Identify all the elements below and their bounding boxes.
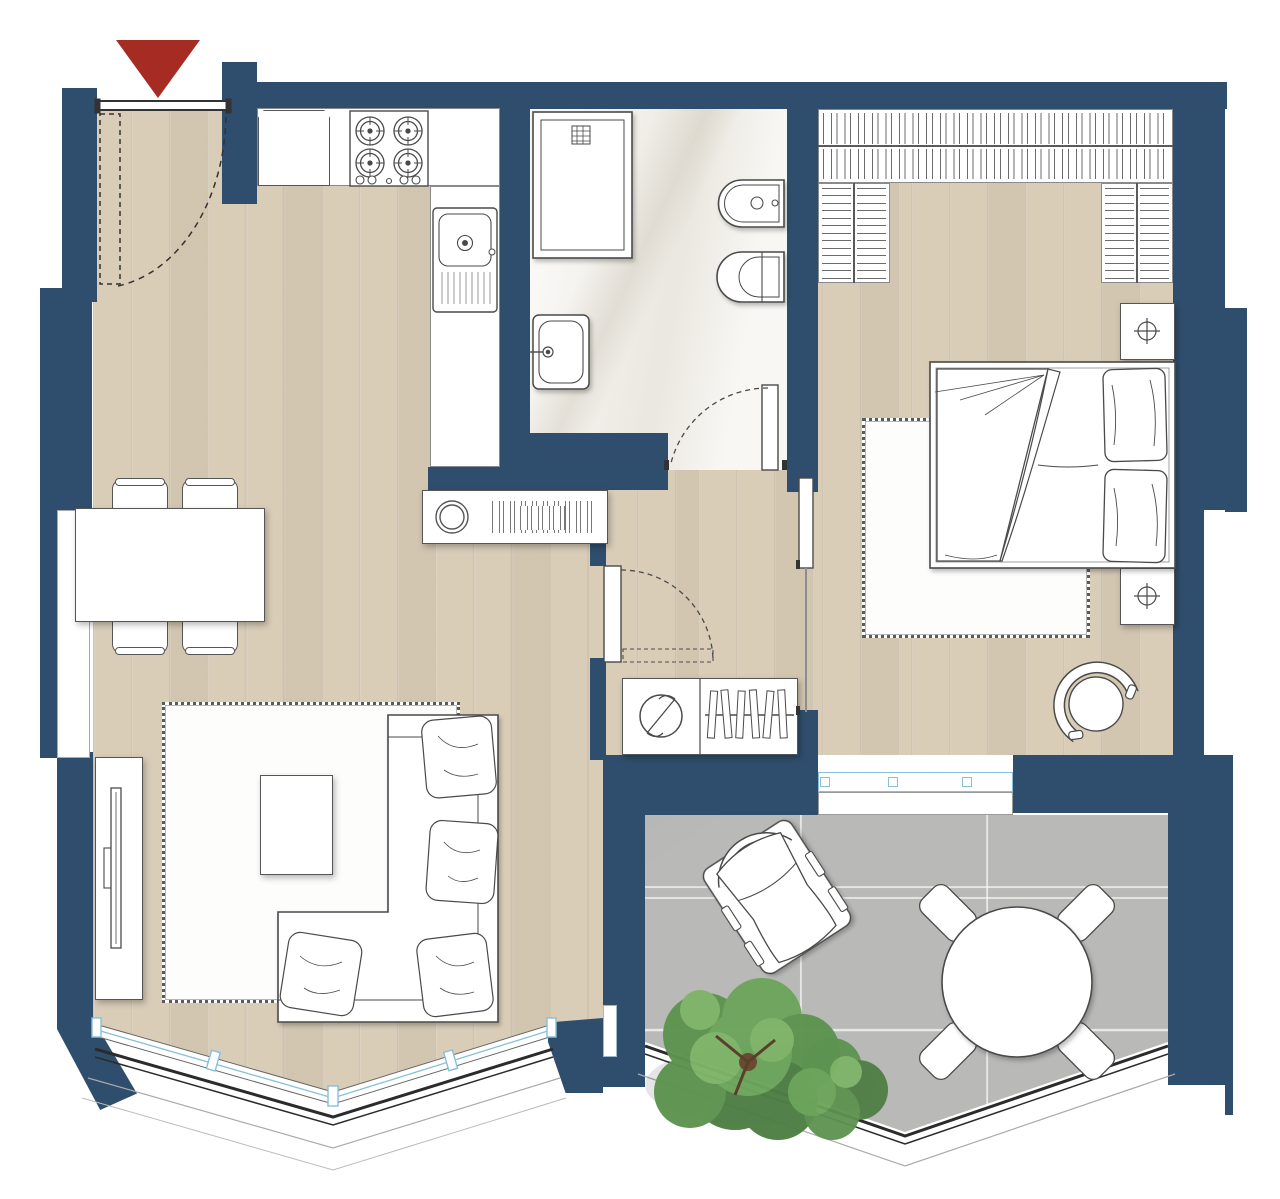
wall-right-bump	[1225, 308, 1247, 512]
wall-left-mid	[40, 288, 92, 510]
wall-kitchen-bath-divider	[500, 109, 530, 467]
refrigerator	[258, 110, 330, 186]
wall-left-low	[57, 752, 93, 1028]
wall-bedroom-bottom	[1013, 755, 1227, 813]
wall-left-top	[62, 88, 97, 302]
chair-back	[115, 478, 165, 486]
window-mullion	[888, 777, 898, 787]
wardrobe-rail	[853, 183, 855, 283]
wall-right-skin	[1225, 755, 1233, 1115]
floor-plan	[0, 0, 1280, 1199]
window-mullion	[820, 777, 830, 787]
tv-unit	[95, 757, 143, 1000]
bedroom-rug	[862, 418, 1090, 638]
nightstand	[1120, 568, 1175, 625]
wall-living-terrace-wedge	[548, 1018, 603, 1093]
dining-table	[75, 508, 265, 622]
wall-left-window-outer	[40, 510, 57, 758]
terrace-side-window	[603, 1005, 617, 1057]
books-row	[520, 506, 565, 530]
bathroom-floor	[530, 108, 787, 470]
wall-entrance-stub	[222, 62, 257, 204]
wall-right-upper	[1173, 109, 1225, 510]
entrance-marker	[116, 40, 200, 98]
wardrobe-rail	[818, 145, 1173, 147]
bedroom-terrace-window	[818, 772, 1013, 792]
chair-back	[115, 647, 165, 655]
wall-bath-right	[787, 109, 818, 492]
bedroom-terrace-window-sill	[818, 792, 1013, 815]
hall-closet	[622, 678, 798, 755]
wardrobe-hangers-column	[1140, 188, 1169, 279]
coffee-table	[260, 775, 333, 875]
wall-bath-bottom	[530, 433, 668, 467]
wall-hall-bottom	[603, 755, 818, 815]
chair-back	[185, 478, 235, 486]
entrance-door-frame	[97, 100, 228, 111]
wardrobe-hangers-column	[857, 188, 886, 279]
wall-top	[255, 82, 1227, 109]
nightstand	[1120, 303, 1175, 360]
wall-terrace-right	[1168, 813, 1225, 1085]
wardrobe-rail	[1136, 183, 1138, 283]
wall-right-narrow	[1173, 510, 1204, 755]
wardrobe-hangers-row	[823, 149, 1169, 179]
wardrobe-hangers-column	[1105, 188, 1134, 279]
wardrobe-hangers-column	[822, 188, 851, 279]
chair-back	[185, 647, 235, 655]
window-mullion	[962, 777, 972, 787]
wall-hall-left-lower	[590, 658, 606, 760]
kitchen-counter-side	[430, 186, 500, 467]
wardrobe-hangers-row	[823, 113, 1169, 144]
wall-hall-top	[428, 467, 668, 490]
